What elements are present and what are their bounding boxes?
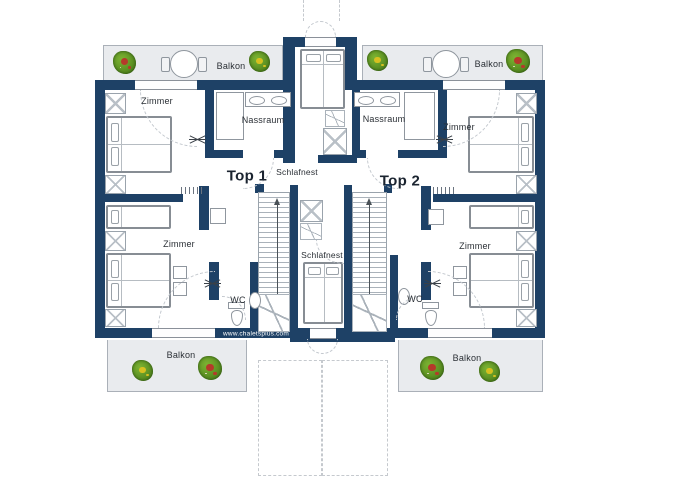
double-sink-counter [245,92,291,107]
room-label-balkon-bottom-left: Balkon [167,350,196,360]
wall-segment [95,80,105,338]
door-swing [305,21,336,37]
plant-icon [367,50,388,71]
room-label-nassraum-left: Nassraum [242,115,285,125]
wall-segment [357,80,443,90]
wall-segment [535,80,545,338]
wall-segment [357,150,366,158]
wardrobe [105,93,126,114]
winder-steps [352,294,387,332]
room-label-balkon-bottom-right: Balkon [453,353,482,363]
shower [404,92,435,140]
wardrobe [105,309,126,327]
balcony-bottom-left [107,340,247,392]
balcony-door-top-left [135,80,197,90]
plant-icon [132,360,153,381]
room-label-zimmer-bottom-left: Zimmer [163,239,195,249]
wall-segment [336,37,357,47]
single-bed [469,205,534,229]
room-label-zimmer-top-left: Zimmer [141,96,173,106]
roof-edge-line [303,0,304,21]
single-bed [106,205,171,229]
winder-steps [258,294,290,332]
wall-segment [318,155,357,163]
door-swing [307,339,338,354]
patio-table [170,50,198,78]
shower [216,92,244,140]
plant-icon [113,51,136,74]
double-bed [469,253,534,308]
schlafnest-bed [300,49,345,109]
balcony-door-bottom-left [152,328,215,338]
wall-segment [205,150,243,158]
wardrobe [105,231,126,251]
floor-plan: www.chaletsplus.com [0,0,700,500]
wall-segment [433,194,545,202]
radiator-symbol [433,187,454,194]
room-label-balkon-top-left: Balkon [217,61,246,71]
double-sink-counter [354,92,400,107]
balcony-door-top-right [443,80,505,90]
wall-segment [344,185,352,332]
plant-icon [479,361,500,382]
wardrobe [105,175,126,194]
washbasin-icon [380,96,396,105]
washbasin-icon [271,96,287,105]
stair-direction-arrow [369,202,370,294]
apartment-label-top1: Top 1 [227,168,267,185]
room-label-wc-right: WC [407,294,422,304]
lower-level-outline [258,360,322,476]
roof-edge-line [339,0,340,21]
balcony-door-bottom-right [428,328,492,338]
plant-icon [198,356,222,380]
shaft-hatch [300,200,323,222]
patio-chair [161,57,170,72]
washbasin-icon [358,96,374,105]
dormer-door-top-center [305,37,336,47]
plant-icon [506,49,530,73]
patio-chair [460,57,469,72]
wall-segment [95,194,183,202]
wall-segment [274,150,283,158]
bedside-table [173,266,187,279]
double-bed [106,253,171,308]
winder-steps [300,223,322,240]
schlafnest-bed [303,262,343,324]
washbasin-icon [249,292,261,309]
room-label-zimmer-bottom-right: Zimmer [459,241,491,251]
cabinet [210,208,226,224]
plant-icon [249,51,270,72]
cabinet [428,209,444,225]
room-label-schlafnest-top: Schlafnest [276,167,318,177]
wall-segment [398,150,438,158]
radiator-symbol [181,187,202,194]
room-label-nassraum-right: Nassraum [363,114,406,124]
wardrobe [516,231,537,251]
winder-steps [325,110,345,127]
room-label-zimmer-top-right: Zimmer [443,122,475,132]
exit-door-bottom-center [310,328,336,339]
wardrobe [516,175,537,194]
patio-table [432,50,460,78]
room-label-schlafnest-center: Schlafnest [301,250,343,260]
wall-segment [205,89,214,158]
patio-chair [198,57,207,72]
wardrobe [516,93,537,114]
stair-direction-arrow [277,202,278,294]
lower-level-outline [322,360,388,476]
apartment-label-top2: Top 2 [380,173,420,190]
washbasin-icon [249,96,265,105]
plant-icon [420,356,444,380]
wall-segment [290,185,298,332]
wardrobe [516,309,537,327]
room-label-wc-left: WC [230,295,245,305]
patio-chair [423,57,432,72]
shaft-hatch [323,128,347,155]
wall-segment [283,37,305,47]
room-label-balkon-top-right: Balkon [475,59,504,69]
wall-segment [390,255,398,332]
